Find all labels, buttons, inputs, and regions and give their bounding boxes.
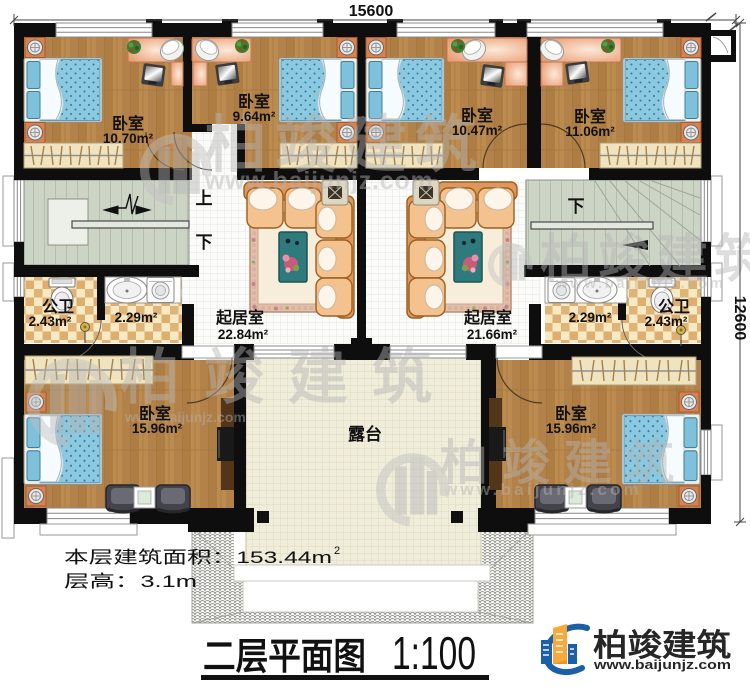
svg-text:下: 下 bbox=[196, 233, 213, 252]
svg-text:www.baijunjz.com: www.baijunjz.com bbox=[204, 167, 434, 195]
svg-text:9.64m²: 9.64m² bbox=[233, 109, 276, 124]
svg-text:2.43m²: 2.43m² bbox=[645, 314, 688, 329]
svg-text:层高：3.1m: 层高：3.1m bbox=[64, 572, 197, 591]
svg-text:下: 下 bbox=[568, 197, 585, 216]
svg-text:11.06m²: 11.06m² bbox=[565, 124, 615, 139]
svg-text:露台: 露台 bbox=[348, 424, 382, 444]
svg-text:www.baijunjz.com: www.baijunjz.com bbox=[555, 275, 725, 292]
svg-text:15.96m²: 15.96m² bbox=[132, 421, 183, 436]
svg-text:上: 上 bbox=[196, 189, 213, 208]
svg-text:15600: 15600 bbox=[349, 3, 394, 20]
svg-text:www.baijunjz.com: www.baijunjz.com bbox=[443, 480, 642, 499]
svg-text:2.43m²: 2.43m² bbox=[29, 314, 72, 329]
svg-text:1:100: 1:100 bbox=[392, 627, 476, 679]
svg-text:2.29m²: 2.29m² bbox=[569, 310, 612, 325]
svg-text:柏竣建筑: 柏竣建筑 bbox=[120, 344, 456, 411]
svg-text:起居室: 起居室 bbox=[215, 308, 264, 327]
svg-text:22.84m²: 22.84m² bbox=[218, 327, 269, 342]
svg-text:2.29m²: 2.29m² bbox=[115, 310, 158, 325]
svg-text:起居室: 起居室 bbox=[463, 308, 512, 327]
svg-text:21.66m²: 21.66m² bbox=[467, 327, 518, 342]
svg-text:www.baijunjz.com: www.baijunjz.com bbox=[593, 657, 731, 672]
svg-text:10.70m²: 10.70m² bbox=[103, 131, 154, 146]
svg-text:10.47m²: 10.47m² bbox=[452, 123, 503, 138]
svg-text:12600: 12600 bbox=[731, 296, 748, 341]
svg-text:本层建筑面积：153.44m: 本层建筑面积：153.44m bbox=[64, 548, 332, 567]
svg-text:2: 2 bbox=[334, 545, 340, 557]
svg-text:15.96m²: 15.96m² bbox=[546, 421, 597, 436]
svg-text:二层平面图: 二层平面图 bbox=[203, 636, 366, 677]
